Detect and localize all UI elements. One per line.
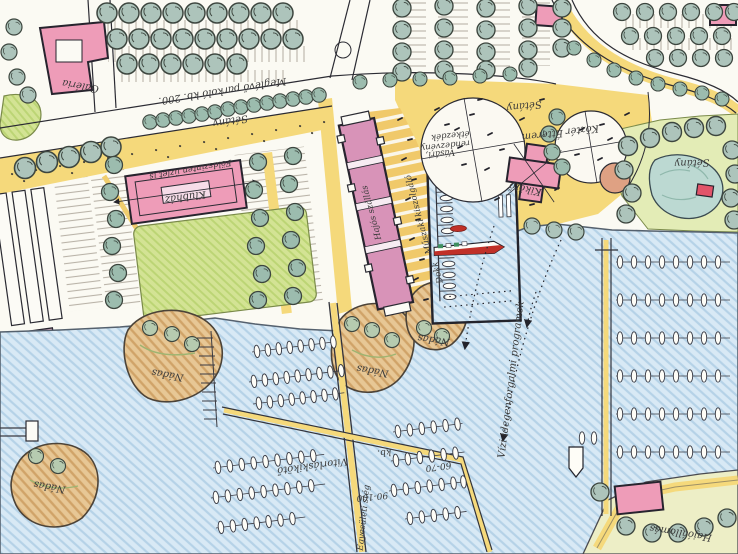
site-plan-drawing: Galéria Meglévő parkoló kb. 200. Sétány … (0, 0, 738, 554)
park-pavilion (696, 184, 713, 197)
label-kb: kb. (377, 446, 392, 457)
red-boat-3 (450, 225, 466, 232)
label-setany-3: Sétány (674, 156, 710, 168)
boat-station-building (615, 482, 664, 515)
